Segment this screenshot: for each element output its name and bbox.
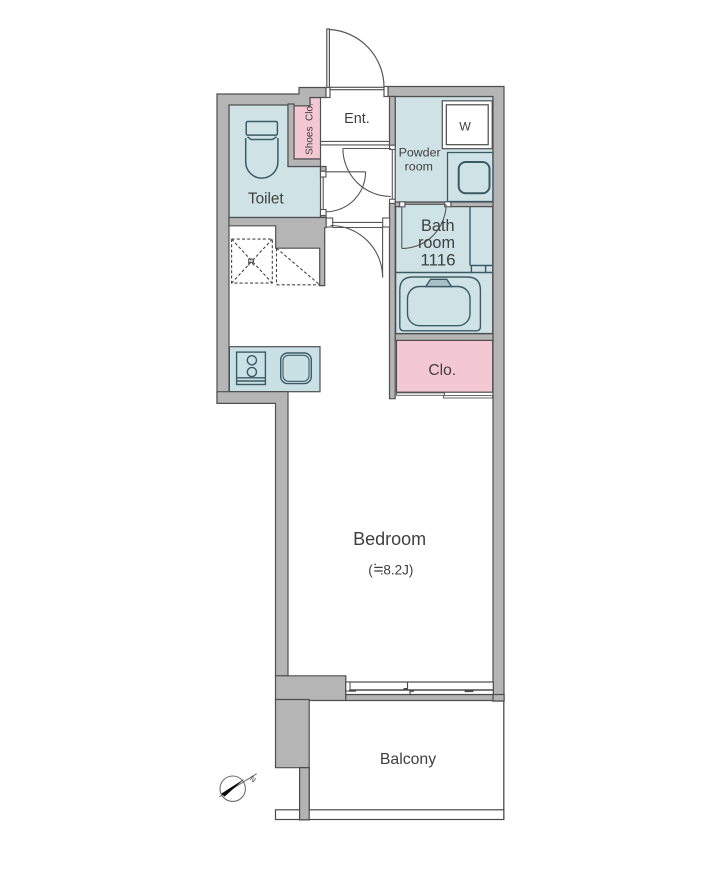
svg-text:Shoes Clo.: Shoes Clo. xyxy=(305,103,316,155)
svg-text:W: W xyxy=(459,120,471,134)
svg-text:Bedroom: Bedroom xyxy=(353,529,426,549)
svg-text:Toilet: Toilet xyxy=(248,190,284,207)
svg-text:R: R xyxy=(247,256,255,268)
svg-text:(: ( xyxy=(368,563,373,578)
svg-text:Balcony: Balcony xyxy=(380,751,436,768)
svg-text:Bath: Bath xyxy=(421,217,455,235)
svg-text:room: room xyxy=(405,160,433,174)
svg-text:Ent.: Ent. xyxy=(344,111,370,127)
svg-text:room: room xyxy=(418,234,455,252)
svg-text:1116: 1116 xyxy=(420,250,455,269)
svg-text:Clo.: Clo. xyxy=(428,362,456,379)
svg-text:8.2J): 8.2J) xyxy=(383,563,413,578)
svg-text:Powder: Powder xyxy=(399,146,441,160)
